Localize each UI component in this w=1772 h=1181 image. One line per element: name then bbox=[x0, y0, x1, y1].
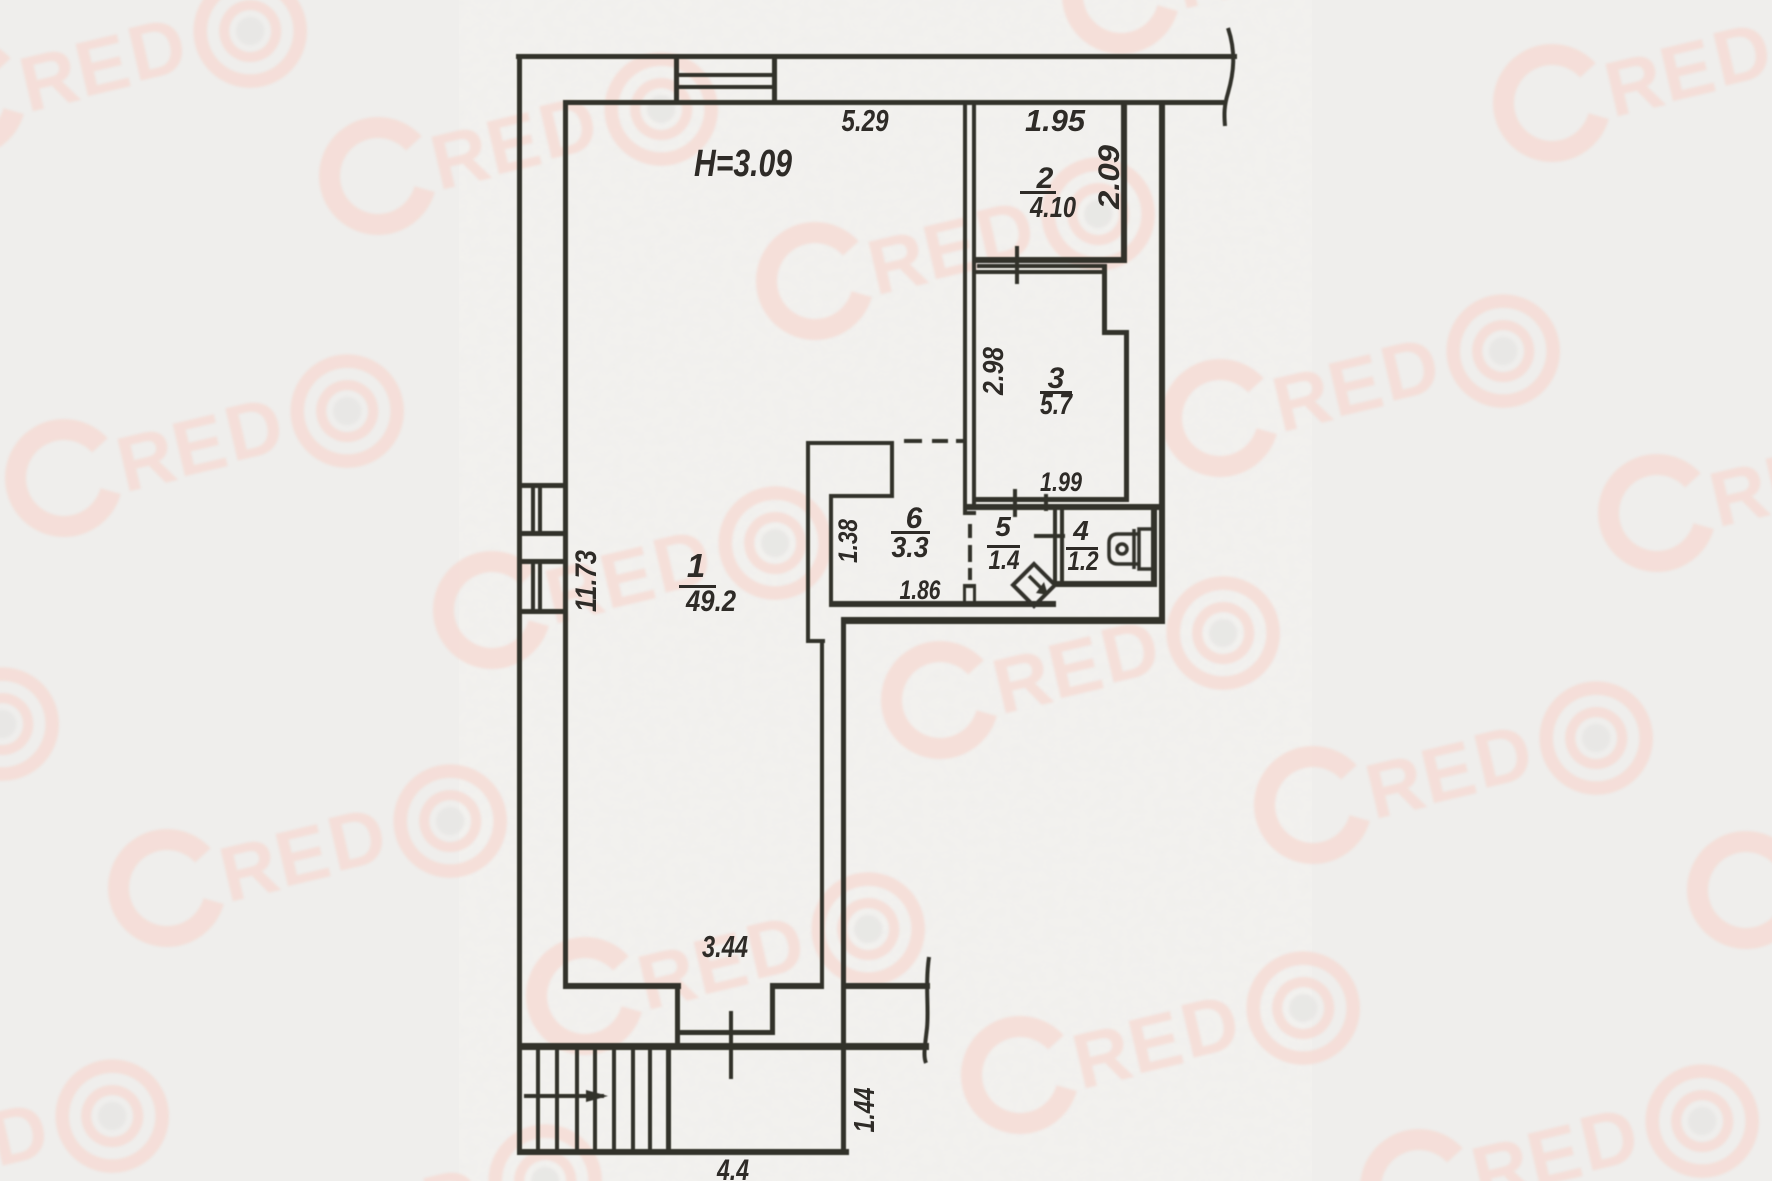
svg-text:1: 1 bbox=[687, 547, 705, 584]
svg-text:3.44: 3.44 bbox=[702, 929, 748, 964]
svg-text:5.7: 5.7 bbox=[1040, 389, 1073, 421]
svg-text:1.95: 1.95 bbox=[1025, 103, 1086, 138]
svg-text:1.4: 1.4 bbox=[989, 545, 1020, 575]
svg-text:49.2: 49.2 bbox=[685, 585, 736, 618]
svg-text:4: 4 bbox=[1072, 515, 1089, 546]
svg-text:1.44: 1.44 bbox=[849, 1088, 881, 1133]
svg-text:5.29: 5.29 bbox=[842, 103, 890, 138]
svg-text:3.3: 3.3 bbox=[892, 532, 929, 564]
svg-text:1.86: 1.86 bbox=[900, 575, 942, 605]
svg-text:4.4: 4.4 bbox=[716, 1154, 749, 1181]
svg-text:6: 6 bbox=[906, 502, 923, 535]
svg-text:5: 5 bbox=[995, 511, 1011, 542]
svg-text:11.73: 11.73 bbox=[570, 550, 603, 612]
svg-text:1.38: 1.38 bbox=[833, 519, 863, 563]
svg-text:2.98: 2.98 bbox=[978, 346, 1010, 396]
svg-text:2.09: 2.09 bbox=[1093, 145, 1126, 210]
svg-text:1.99: 1.99 bbox=[1040, 467, 1082, 497]
svg-text:H=3.09: H=3.09 bbox=[694, 143, 792, 185]
svg-text:4.10: 4.10 bbox=[1029, 192, 1076, 224]
svg-text:2: 2 bbox=[1036, 162, 1054, 195]
svg-text:1.2: 1.2 bbox=[1068, 546, 1099, 576]
